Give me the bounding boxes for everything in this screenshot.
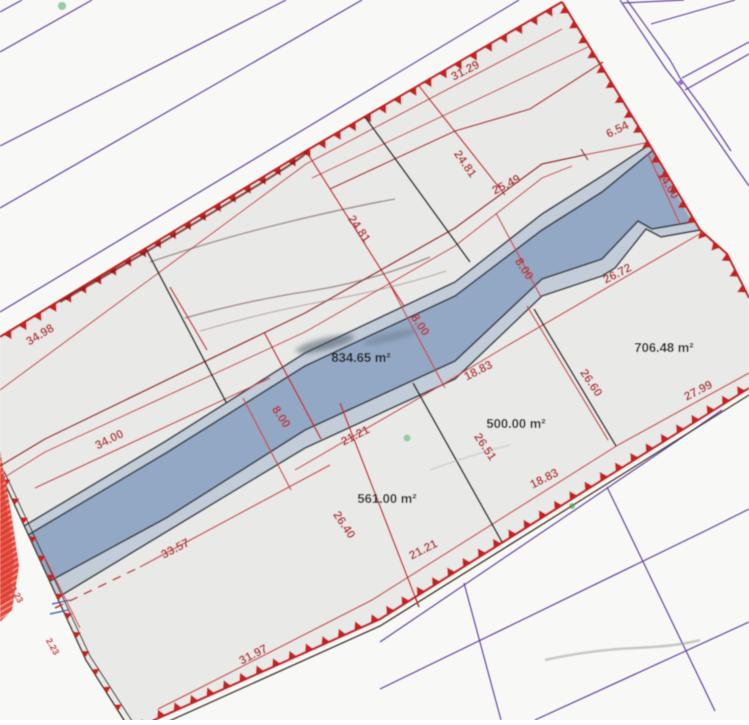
svg-text:500.00 m²: 500.00 m² [486, 416, 546, 431]
svg-text:834.65 m²: 834.65 m² [331, 350, 391, 365]
svg-text:706.48 m²: 706.48 m² [634, 340, 694, 355]
svg-text:561.00 m²: 561.00 m² [357, 491, 417, 506]
